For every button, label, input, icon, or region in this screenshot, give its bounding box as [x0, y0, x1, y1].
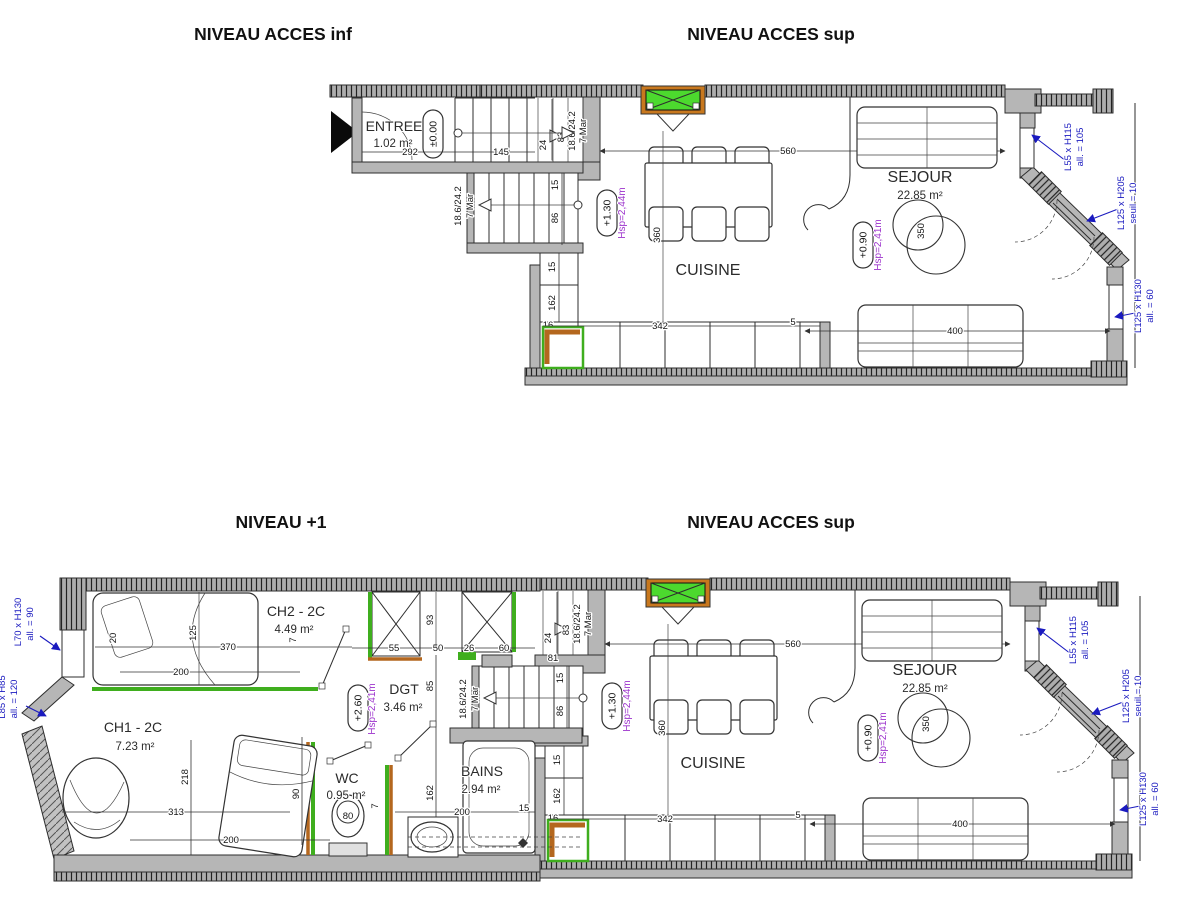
room-label-wc: WC [335, 770, 358, 786]
dim-162: 162 [425, 785, 436, 801]
dim-313: 313 [168, 807, 184, 818]
dim-200a: 200 [173, 667, 189, 678]
room-label-dgt: DGT [389, 681, 419, 697]
dim-50: 50 [433, 643, 444, 654]
dim-292: 292 [402, 147, 418, 158]
title-niveau-acces-sup-top: NIVEAU ACCES sup [687, 24, 855, 44]
dim-60: 60 [499, 643, 510, 654]
chair-ch1 [63, 758, 129, 838]
dim-370: 370 [220, 642, 236, 653]
svg-text:+2.60: +2.60 [353, 695, 365, 722]
dim-125: 125 [188, 625, 199, 641]
room-area-dgt: 3.46 m² [384, 702, 423, 714]
room-area-bains: 2.94 m² [462, 784, 501, 796]
toilet: 80 [329, 795, 367, 856]
elevation-badge-entree: ±0.00 [423, 110, 443, 158]
svg-text:all. = 120: all. = 120 [9, 680, 20, 719]
svg-text:L85 x H85: L85 x H85 [0, 675, 8, 718]
dim-55: 55 [389, 643, 400, 654]
svg-text:80: 80 [343, 811, 354, 822]
dim-7b: 7 [370, 803, 381, 808]
svg-text:±0.00: ±0.00 [428, 121, 440, 147]
dim-200c: 200 [223, 835, 239, 846]
dim-26: 26 [464, 643, 475, 654]
dim-15: 15 [519, 803, 530, 814]
room-label-ch1: CH1 - 2C [104, 719, 162, 735]
title-niveau-plus-1: NIVEAU +1 [236, 512, 327, 532]
dim-85: 85 [425, 681, 436, 692]
dim-90: 90 [291, 789, 302, 800]
dim-145: 145 [493, 147, 509, 158]
svg-text:all. = 90: all. = 90 [25, 607, 36, 641]
dim-218: 218 [180, 769, 191, 785]
room-label-entree: ENTREE [366, 118, 423, 134]
dim-20: 20 [108, 633, 119, 644]
bathtub [463, 741, 535, 853]
dim-93: 93 [425, 615, 436, 626]
floorplan-canvas: 15 86 24 83 81 18.6/24.2 7 Mar 18.6/24.2… [0, 0, 1200, 900]
room-area-ch2: 4.49 m² [275, 624, 314, 636]
room-area-ch1: 7.23 m² [116, 741, 155, 753]
dim-200b: 200 [454, 807, 470, 818]
ceiling-height-n1: Hsp=2,41m [367, 683, 378, 734]
window-l70 [62, 630, 84, 677]
dim-7a: 7 [288, 637, 299, 642]
floorplan-page: 15 86 24 83 81 18.6/24.2 7 Mar 18.6/24.2… [0, 0, 1200, 900]
room-label-bains: BAINS [461, 763, 503, 779]
room-label-ch2: CH2 - 2C [267, 603, 325, 619]
room-area-wc: 0.95 m² [327, 790, 366, 802]
svg-text:L70 x H130: L70 x H130 [13, 598, 24, 647]
title-niveau-acces-sup-bottom: NIVEAU ACCES sup [687, 512, 855, 532]
title-niveau-acces-inf: NIVEAU ACCES inf [194, 24, 352, 44]
elevation-badge-n1: +2.60 [348, 685, 368, 731]
